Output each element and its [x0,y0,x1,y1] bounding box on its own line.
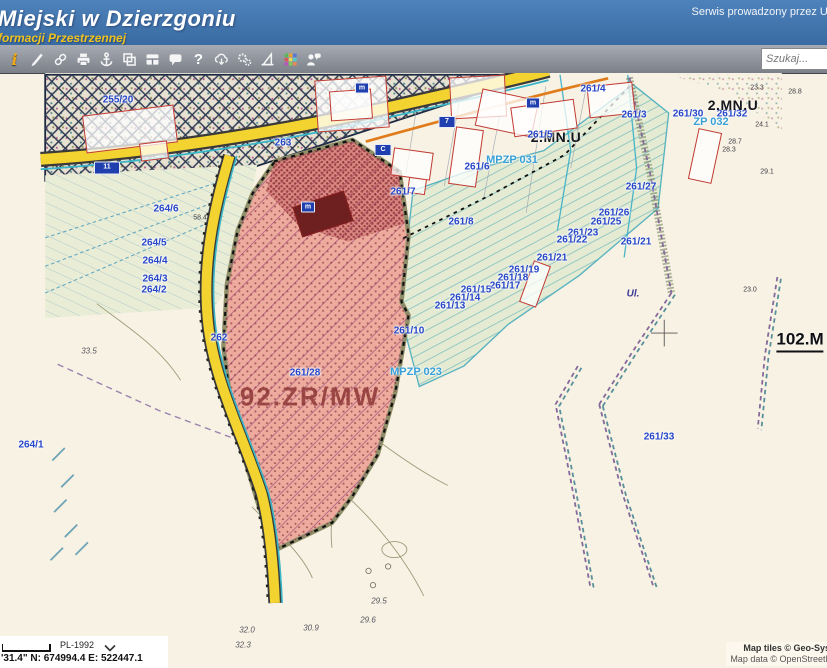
header-bar: Miejski w Dzierzgoniu formacji Przestrze… [0,0,827,45]
road-shield: m [355,83,369,94]
cloud-download-icon[interactable] [213,49,230,69]
building-footprint [390,147,434,180]
map-canvas[interactable]: 255/20263261/4261/3261/30261/32ZP 0322.M… [0,73,827,668]
service-note: Serwis prowadzony przez Urz [692,6,827,18]
building-footprint [586,82,635,119]
help-icon[interactable]: ? [190,49,207,69]
road-shield: C [375,144,392,156]
anchor-icon[interactable] [98,49,115,69]
building-footprint [407,177,427,195]
map-attribution: Map tiles © Geo-Syst Map data © OpenStre… [726,642,827,666]
attribution-tiles: Map tiles © Geo-Syst [730,643,827,654]
building-footprint [329,89,373,122]
link-icon[interactable] [52,49,69,69]
copy-icon[interactable] [121,49,138,69]
road-shield: 11 [94,162,120,175]
app-title: Miejski w Dzierzgoniu [0,6,236,32]
settings-gears-icon[interactable] [236,49,253,69]
crs-label: PL-1992 [60,640,94,650]
building-footprint [139,140,169,161]
speech-bubble-icon[interactable] [167,49,184,69]
legend-palette-icon[interactable] [282,49,299,69]
road-shield: m [526,98,540,109]
print-icon[interactable] [75,49,92,69]
question-glyph: ? [194,51,203,68]
attribution-data: Map data © OpenStreetM [730,654,827,665]
info-icon[interactable]: i [6,49,23,69]
status-panel: PL-1992 '31.4" N: 674994.4 E: 522447.1 [0,636,168,668]
layout-panes-icon[interactable] [144,49,161,69]
info-glyph: i [11,50,17,69]
toolbar: i ? [0,45,827,74]
feedback-person-icon[interactable] [305,49,322,69]
scale-bar [2,644,51,652]
road-shield: m [301,202,315,213]
gis-app-window: Miejski w Dzierzgoniu formacji Przestrze… [0,0,827,668]
cursor-coordinates: '31.4" N: 674994.4 E: 522447.1 [1,653,143,664]
road-shield: 7 [439,116,456,128]
app-subtitle: formacji Przestrzennej [0,31,126,45]
search-input[interactable] [761,48,827,70]
compass-icon[interactable] [259,49,276,69]
pencil-icon[interactable] [29,49,46,69]
